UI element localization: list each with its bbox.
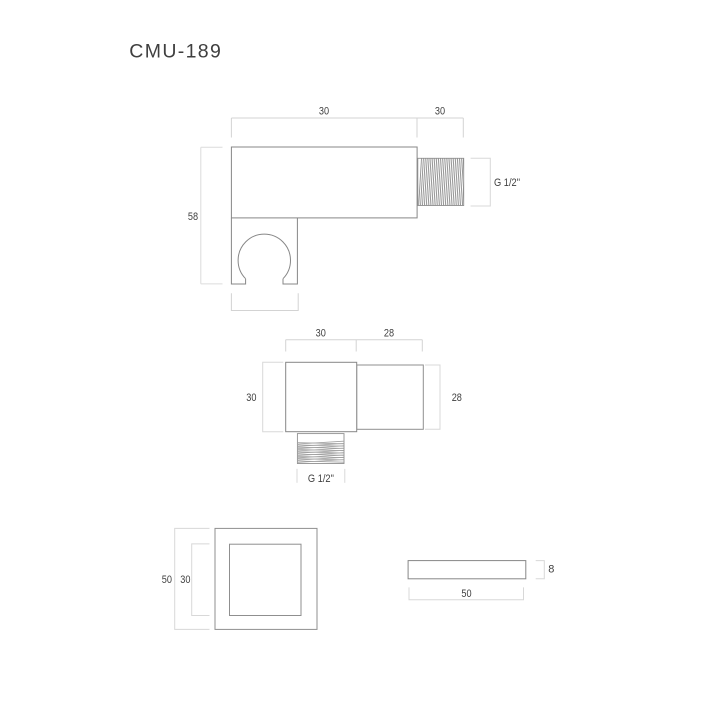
svg-text:8: 8: [548, 564, 554, 576]
svg-text:30: 30: [319, 106, 329, 118]
svg-text:G 1/2": G 1/2": [308, 473, 334, 485]
svg-text:CMU-189: CMU-189: [129, 41, 222, 63]
svg-text:30: 30: [246, 392, 256, 404]
svg-text:50: 50: [461, 588, 471, 600]
svg-text:30: 30: [435, 106, 445, 118]
svg-text:G 1/2": G 1/2": [494, 177, 520, 189]
svg-text:28: 28: [452, 392, 462, 404]
svg-text:50: 50: [162, 574, 172, 586]
svg-text:30: 30: [180, 574, 190, 586]
svg-text:58: 58: [188, 211, 198, 223]
svg-text:28: 28: [384, 327, 394, 339]
svg-text:30: 30: [316, 327, 326, 339]
